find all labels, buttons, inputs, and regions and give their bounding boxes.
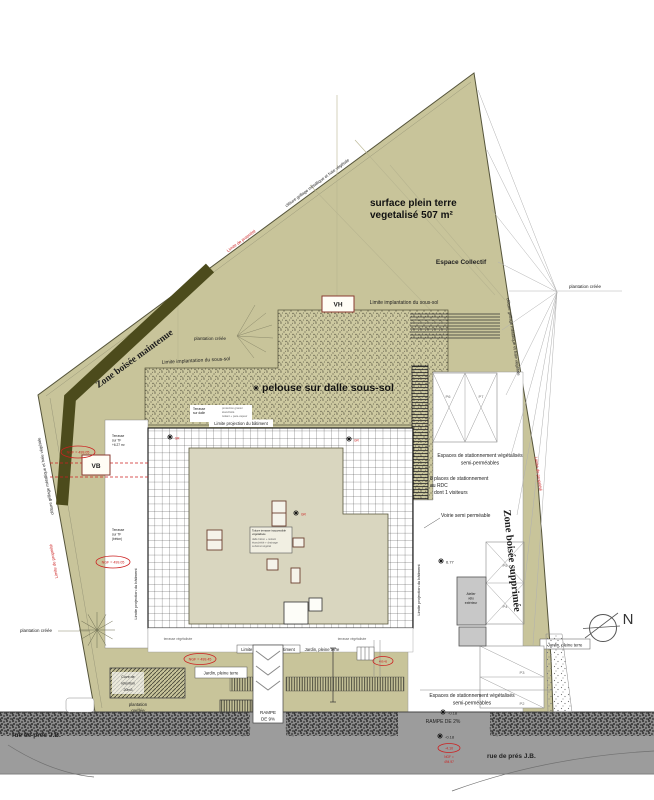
ngf-label: -4.10 [445,747,453,751]
limite-projection-label: Limite projection du bâtiment [133,568,138,620]
note: sur TF [112,439,121,443]
places-label: dont 1 visiteurs [434,490,468,496]
mark-label: GR [301,513,306,517]
cuve-label: 20m3 [124,688,133,692]
stall-label: P2 [520,701,526,706]
limite-projection-label: Limite projection du bâtiment [214,421,268,426]
limite-propriete-label: Limite de propriété [48,543,59,579]
north-label: N [623,611,634,628]
bike-shed: Atelier vélo extérieur [457,577,486,646]
places-label: 8 places de stationnement [430,476,489,482]
roof-legend-line: dalle béton + isolant [252,537,276,541]
ngf-label: NGF = 499.05 [102,561,125,565]
stall-label: P3 [520,670,526,675]
note: (béton) [112,537,122,541]
plantation-creee-label: plantation créée [20,628,53,633]
site-plan-canvas: Toiture terrasse inaccessible végétalisé… [0,0,654,800]
voirie-label: Voirie semi perméable [441,513,491,519]
espace-collectif-label: Espace Collectif [436,259,487,266]
note: isolant + pare-vapeur [222,414,247,418]
stall-label: P6 [446,394,452,399]
note: +6.27 m² [112,443,125,447]
small-planter-box [357,647,374,660]
sidewalk-hatch [0,712,654,736]
terrasse-vegetalisee-label: terrasse végétalisée [164,637,193,641]
stationnement-label: Espaces de stationnement végétalisés [429,693,515,699]
roof-legend-line: Toiture terrasse inaccessible [252,529,286,533]
ngf-label: 499.45 [379,660,388,664]
terrasse-vegetalisee-label: terrasse végétalisée [338,637,367,641]
title-line2: vegetalisé 507 m² [370,210,453,221]
stationnement-label: Espaces de stationnement végétalisés [437,453,523,459]
vh-label: VH [333,302,342,309]
title-line1: surface plein terre [370,198,457,209]
limite-sous-sol-label: Limite implantation du sous-sol [370,300,439,306]
ngf-label: NGF = 499.05 [67,451,90,455]
elevation-label: 6.77 [446,560,455,565]
ramp9-label: RAMPE [260,710,276,715]
corner-entrance [66,698,94,712]
roof-legend-line: étanchéité + drainage [252,541,278,545]
mark-label: SR [175,437,180,441]
plantation-creee-label: plantation créée [569,284,602,289]
plantation-gardee-label: plantation [129,702,148,707]
basement-ramp: RAMPE DE 9% [253,645,283,723]
roof-legend-line: substrat végétal [252,544,271,548]
site-plan-drawing: Toiture terrasse inaccessible végétalisé… [0,0,654,800]
ramp2-label: RAMPE DE 2% [426,719,461,725]
bike-shed-label: extérieur [465,601,478,605]
bike-shed-label: vélo [468,597,474,601]
jardin-label: Jardin, pleine terre [204,671,239,676]
note: sur dalle [193,411,205,415]
retention-tank: Cuve de rétention 20m3 [110,668,185,698]
cuve-label: Cuve de [121,675,134,679]
note: étanchéité [222,410,235,414]
mark-label: GR [354,439,359,443]
jardin-box-a: Jardin, pleine terre [195,667,247,678]
street-name: rue de prés J.B. [487,753,536,760]
bike-shed-label: Atelier [466,592,476,596]
elevation-label: -0.18 [445,735,455,740]
note: Terrasse [112,434,124,438]
places-label: au RDC [430,483,448,489]
stair-strip-east [412,366,428,500]
roof-legend-line: végétalisée [252,532,266,536]
street-name: rue de prés J.B. [12,732,61,739]
limite-projection-label: Limite projection du bâtiment [416,564,421,616]
note: sur TF [112,533,121,537]
elevation-label: -0.18 [448,711,458,716]
ngf-label: NGF = [444,755,454,759]
plantation-creee-label: plantation créée [194,336,227,341]
pelouse-label: pelouse sur dalle sous-sol [262,382,394,394]
vb-box: VB [82,455,110,475]
ramp9-label: DE 9% [261,717,275,722]
stationnement-label: semi-perméables [461,461,500,467]
roof-legend: Toiture terrasse inaccessible végétalisé… [250,527,292,553]
north-arrow-icon: N [583,611,633,642]
vb-label: VB [91,463,100,470]
ngf-label: NGF = 499.45 [189,658,212,662]
ngf-label: 494.97 [444,760,454,764]
stall-label: P4 [503,604,509,609]
stall-label: P7 [479,394,485,399]
stationnement-label: semi-perméables [453,701,492,707]
note: Terrasse [112,528,124,532]
cuve-label: rétention [121,682,135,686]
vh-box: VH [322,296,354,312]
note: protection gravier [222,406,243,410]
